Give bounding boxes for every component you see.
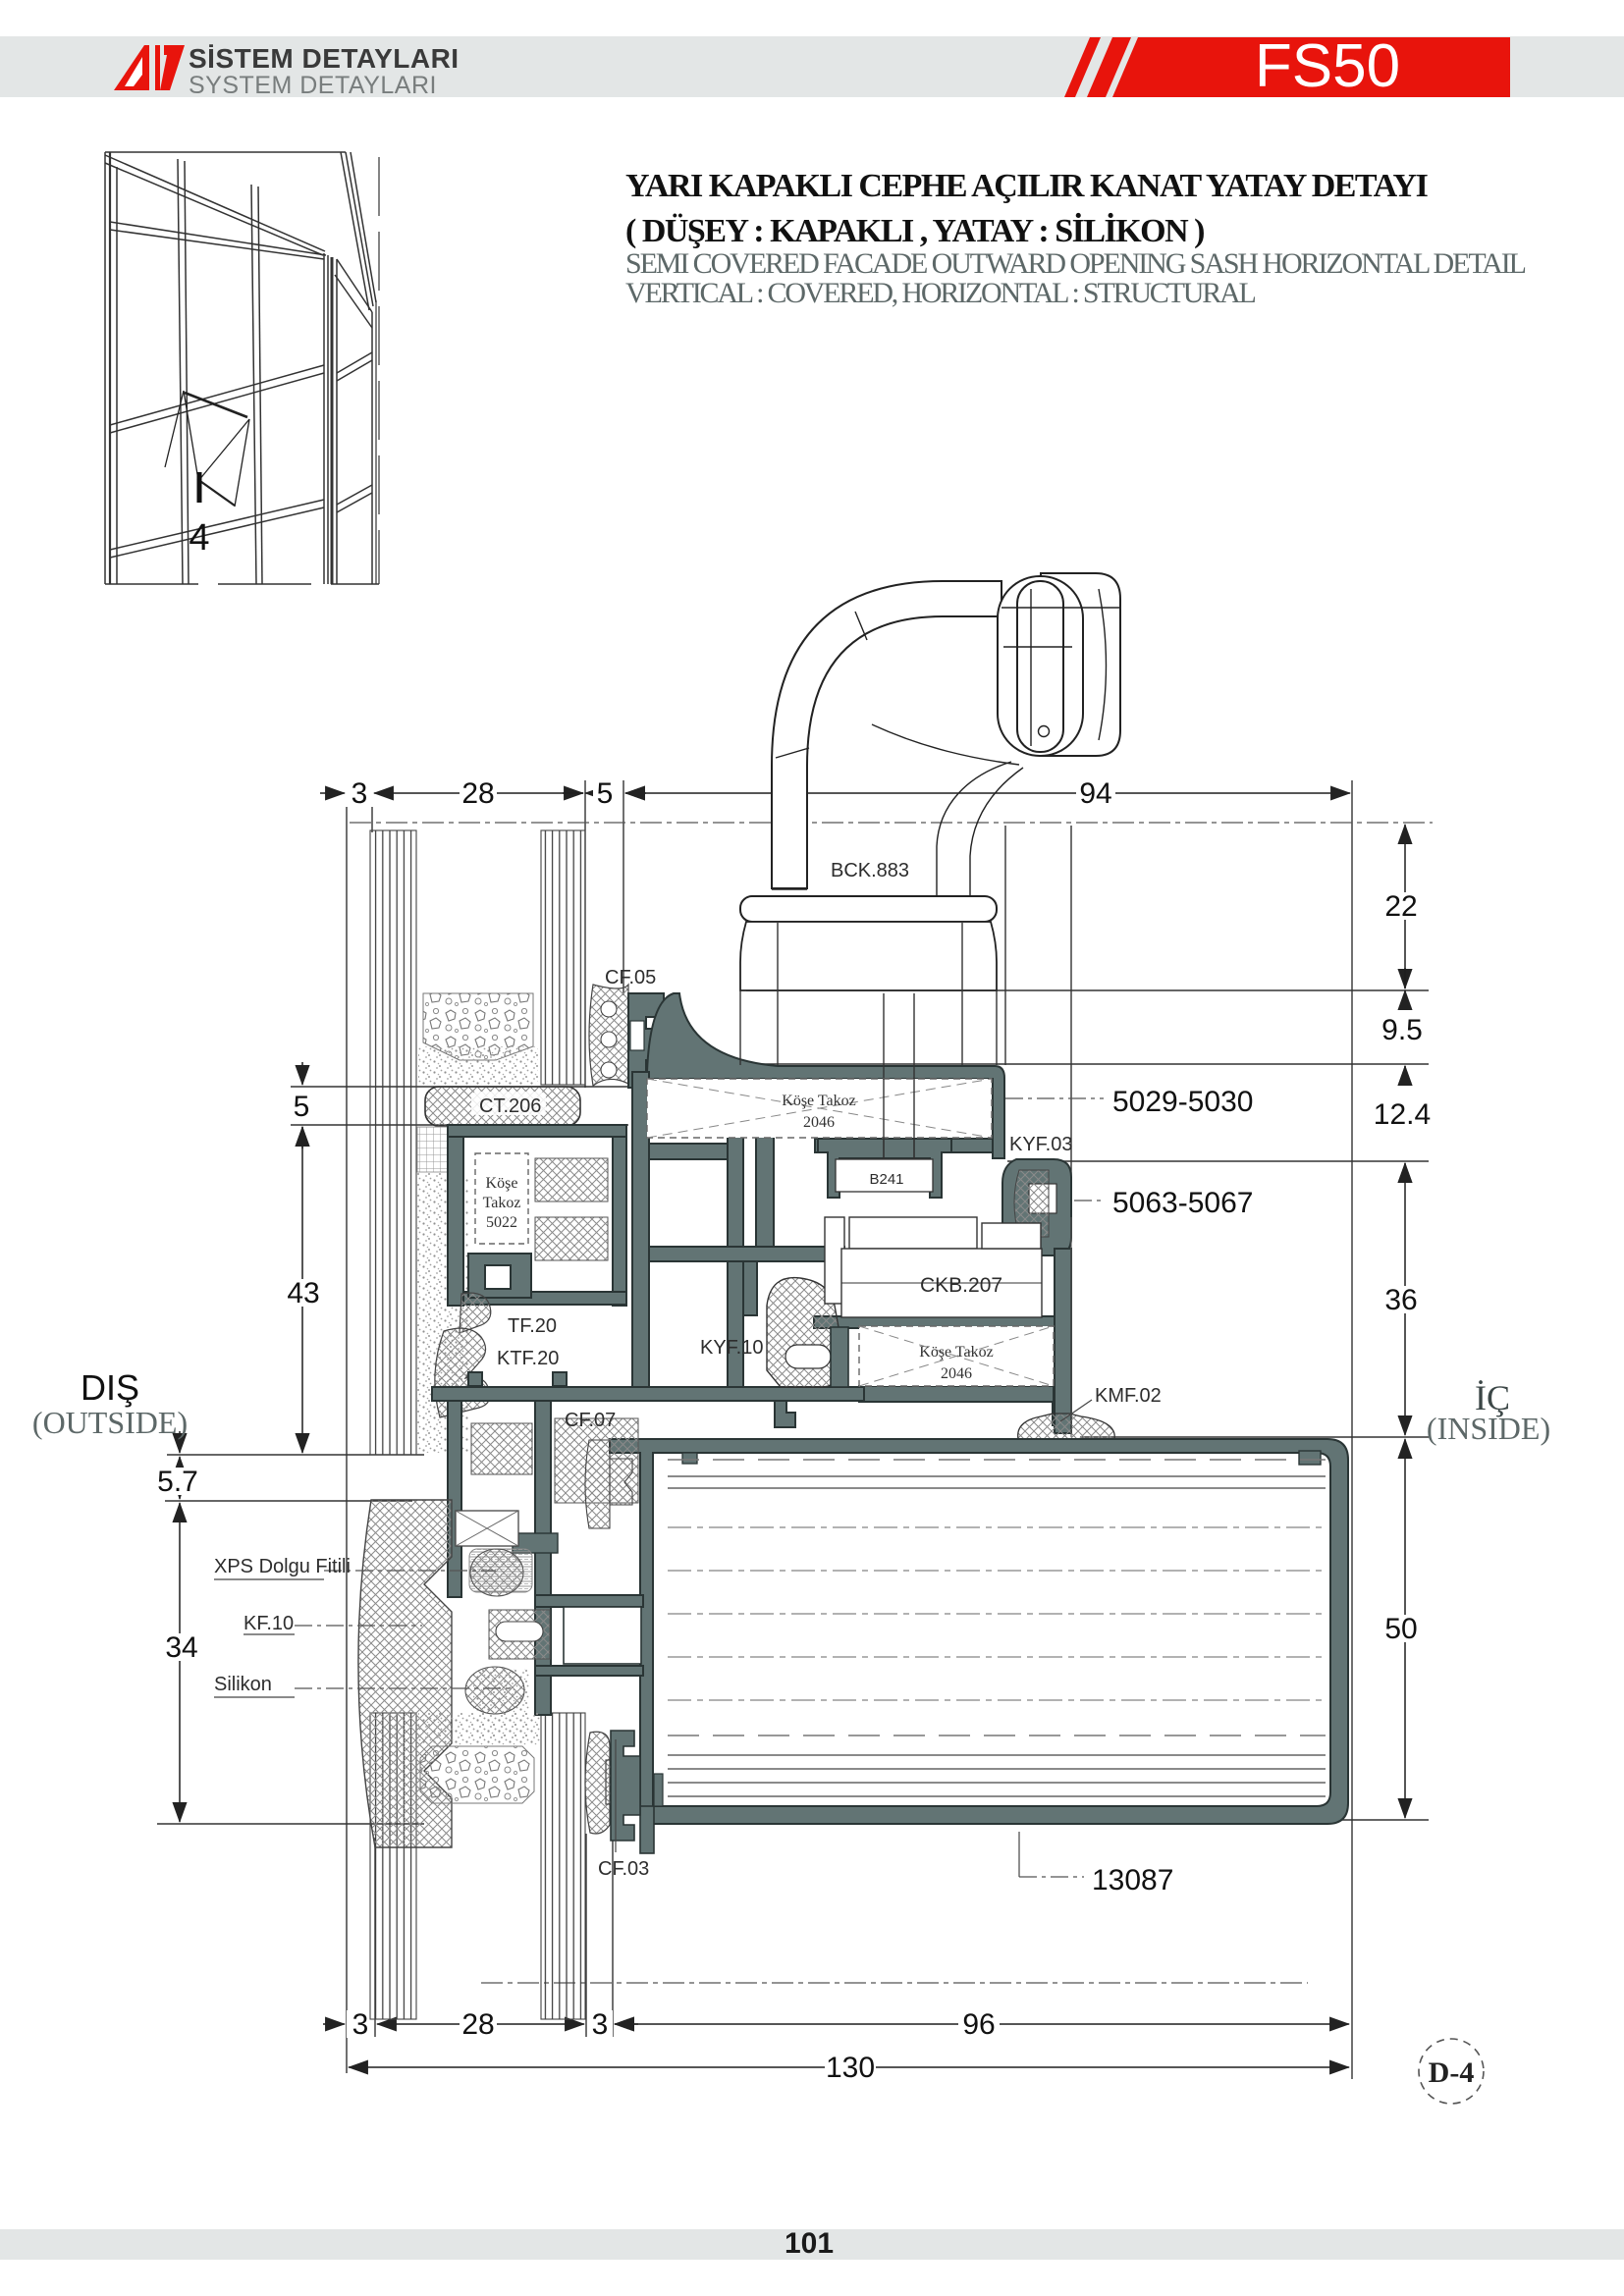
svg-text:28: 28 bbox=[461, 777, 494, 810]
svg-text:5029-5030: 5029-5030 bbox=[1112, 1086, 1253, 1118]
svg-text:3: 3 bbox=[352, 2008, 369, 2041]
svg-text:5: 5 bbox=[294, 1091, 310, 1123]
svg-text:KTF.20: KTF.20 bbox=[497, 1348, 559, 1369]
svg-text:VERTICAL : COVERED, HORIZONTAL: VERTICAL : COVERED, HORIZONTAL : STRUCTU… bbox=[625, 277, 1255, 309]
svg-text:12.4: 12.4 bbox=[1374, 1098, 1431, 1131]
svg-text:SEMI COVERED FACADE OUTWARD OP: SEMI COVERED FACADE OUTWARD OPENING SASH… bbox=[625, 247, 1526, 280]
svg-text:43: 43 bbox=[287, 1277, 319, 1309]
svg-text:Köşe Takoz: Köşe Takoz bbox=[919, 1344, 993, 1361]
svg-text:(INSIDE): (INSIDE) bbox=[1427, 1411, 1550, 1446]
svg-text:CF.03: CF.03 bbox=[598, 1858, 649, 1880]
svg-text:Silikon: Silikon bbox=[214, 1674, 272, 1695]
svg-text:( DÜŞEY : KAPAKLI , YATAY : Sİ: ( DÜŞEY : KAPAKLI , YATAY : SİLİKON ) bbox=[625, 212, 1204, 249]
svg-text:KYF.03: KYF.03 bbox=[1009, 1134, 1072, 1155]
svg-text:101: 101 bbox=[785, 2227, 834, 2260]
svg-text:9.5: 9.5 bbox=[1381, 1014, 1423, 1046]
svg-text:5063-5067: 5063-5067 bbox=[1112, 1187, 1253, 1219]
svg-text:2046: 2046 bbox=[941, 1365, 972, 1382]
svg-text:36: 36 bbox=[1384, 1284, 1417, 1316]
svg-text:D-4: D-4 bbox=[1429, 2056, 1475, 2089]
svg-text:XPS Dolgu Fitili: XPS Dolgu Fitili bbox=[214, 1556, 351, 1577]
svg-text:130: 130 bbox=[826, 2052, 875, 2084]
svg-text:CKB.207: CKB.207 bbox=[920, 1274, 1002, 1297]
svg-text:CT.206: CT.206 bbox=[479, 1095, 541, 1117]
svg-text:3: 3 bbox=[352, 777, 368, 810]
svg-text:BCK.883: BCK.883 bbox=[831, 860, 909, 881]
svg-text:KYF.10: KYF.10 bbox=[700, 1337, 763, 1359]
svg-text:B241: B241 bbox=[869, 1171, 903, 1188]
svg-text:28: 28 bbox=[461, 2008, 494, 2041]
svg-text:50: 50 bbox=[1384, 1613, 1417, 1645]
svg-text:5: 5 bbox=[597, 777, 614, 810]
svg-text:FS50: FS50 bbox=[1255, 32, 1400, 100]
svg-text:Köşe Takoz: Köşe Takoz bbox=[782, 1093, 855, 1109]
svg-text:DIŞ: DIŞ bbox=[81, 1367, 139, 1408]
svg-text:Köşe: Köşe bbox=[486, 1175, 518, 1192]
svg-text:3: 3 bbox=[592, 2008, 609, 2041]
svg-text:22: 22 bbox=[1384, 890, 1417, 923]
svg-text:5022: 5022 bbox=[486, 1214, 517, 1231]
svg-text:96: 96 bbox=[962, 2008, 995, 2041]
svg-text:34: 34 bbox=[165, 1631, 197, 1664]
svg-text:13087: 13087 bbox=[1092, 1864, 1173, 1896]
svg-text:Takoz: Takoz bbox=[483, 1195, 521, 1211]
svg-text:4: 4 bbox=[189, 517, 209, 559]
svg-text:(OUTSIDE): (OUTSIDE) bbox=[32, 1405, 188, 1440]
svg-text:2046: 2046 bbox=[803, 1114, 835, 1131]
svg-text:KF.10: KF.10 bbox=[244, 1613, 294, 1634]
svg-text:KMF.02: KMF.02 bbox=[1095, 1385, 1162, 1407]
svg-text:5.7: 5.7 bbox=[157, 1466, 198, 1498]
svg-text:CF.07: CF.07 bbox=[565, 1410, 616, 1431]
svg-text:CF.05: CF.05 bbox=[605, 967, 656, 988]
svg-text:YARI KAPAKLI CEPHE AÇILIR KAN: YARI KAPAKLI CEPHE AÇILIR KANAT YATAY DE… bbox=[625, 168, 1429, 204]
svg-text:SYSTEM DETAYLARI: SYSTEM DETAYLARI bbox=[189, 72, 437, 99]
svg-text:94: 94 bbox=[1079, 777, 1111, 810]
svg-text:SİSTEM DETAYLARI: SİSTEM DETAYLARI bbox=[189, 43, 460, 74]
svg-text:TF.20: TF.20 bbox=[508, 1315, 557, 1337]
